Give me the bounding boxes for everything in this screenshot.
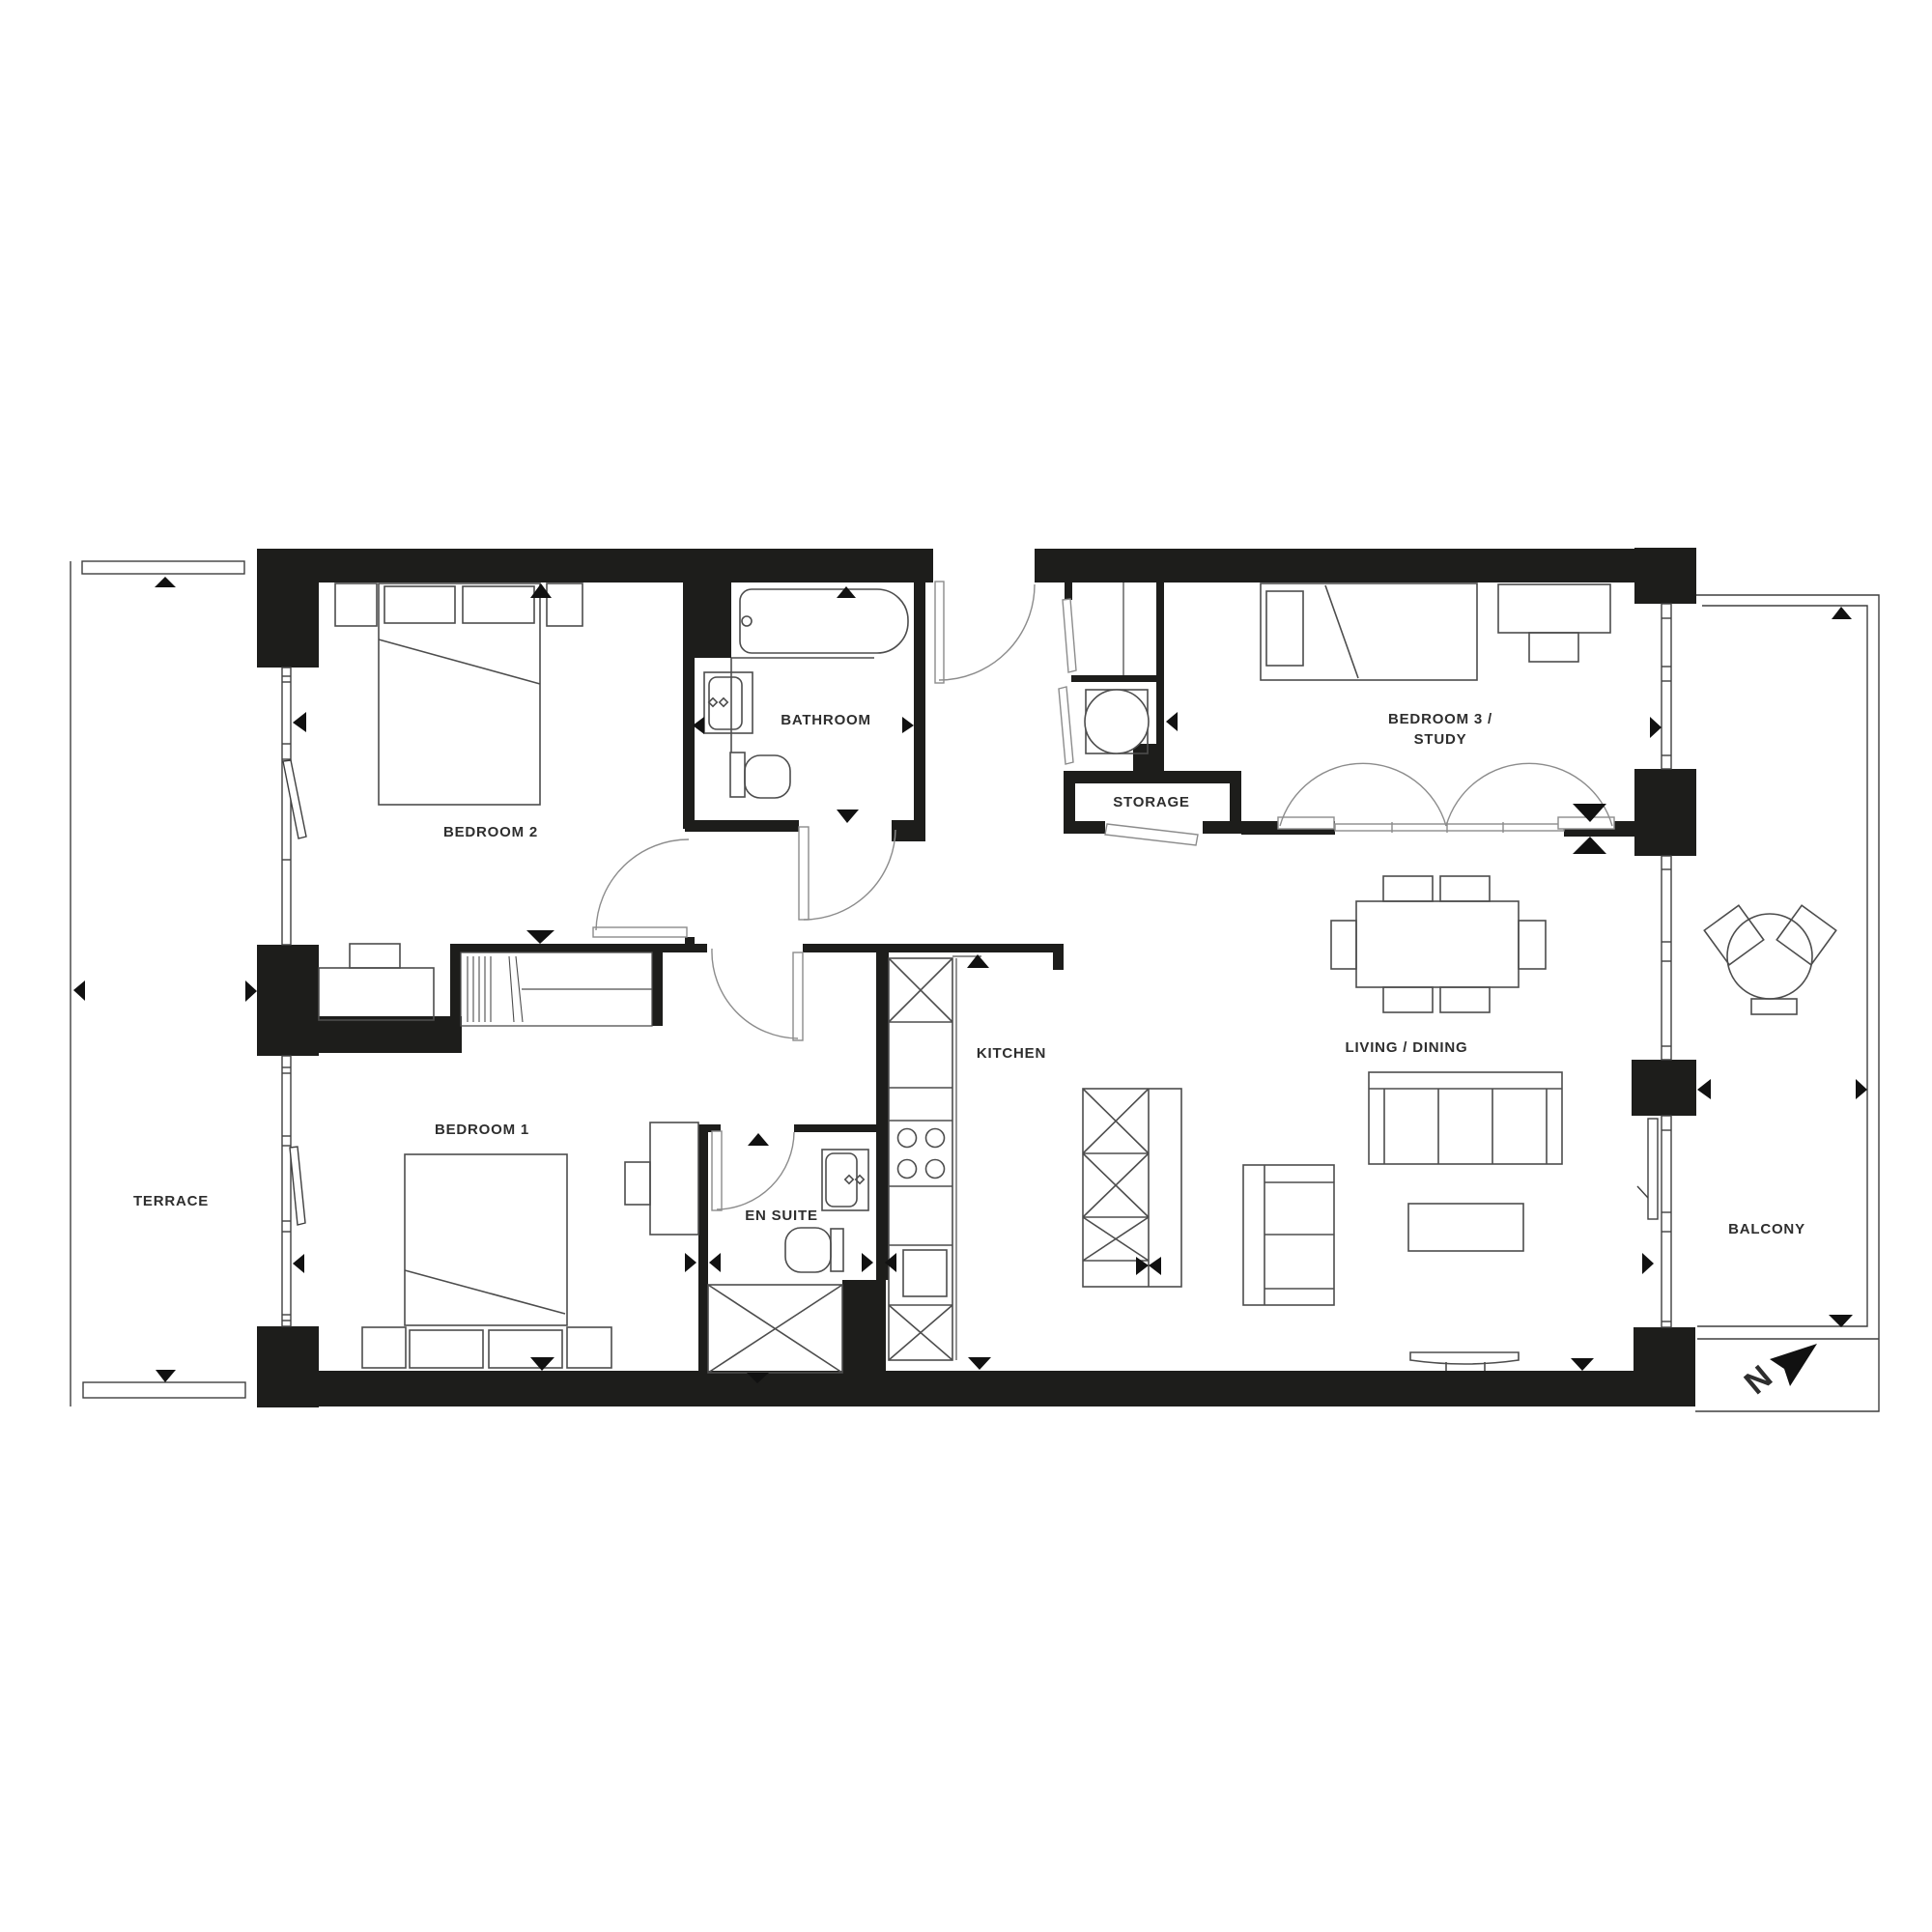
svg-text:STORAGE: STORAGE — [1113, 794, 1190, 810]
svg-text:BALCONY: BALCONY — [1728, 1221, 1805, 1237]
svg-text:BEDROOM 2: BEDROOM 2 — [443, 824, 538, 840]
svg-text:EN SUITE: EN SUITE — [745, 1207, 818, 1224]
svg-text:TERRACE: TERRACE — [133, 1193, 209, 1209]
svg-text:BEDROOM 3 /: BEDROOM 3 / — [1388, 711, 1492, 727]
svg-text:LIVING / DINING: LIVING / DINING — [1345, 1039, 1467, 1056]
svg-text:STUDY: STUDY — [1414, 731, 1467, 748]
svg-text:BATHROOM: BATHROOM — [781, 712, 871, 728]
svg-text:KITCHEN: KITCHEN — [977, 1045, 1046, 1062]
svg-text:BEDROOM 1: BEDROOM 1 — [435, 1122, 529, 1138]
